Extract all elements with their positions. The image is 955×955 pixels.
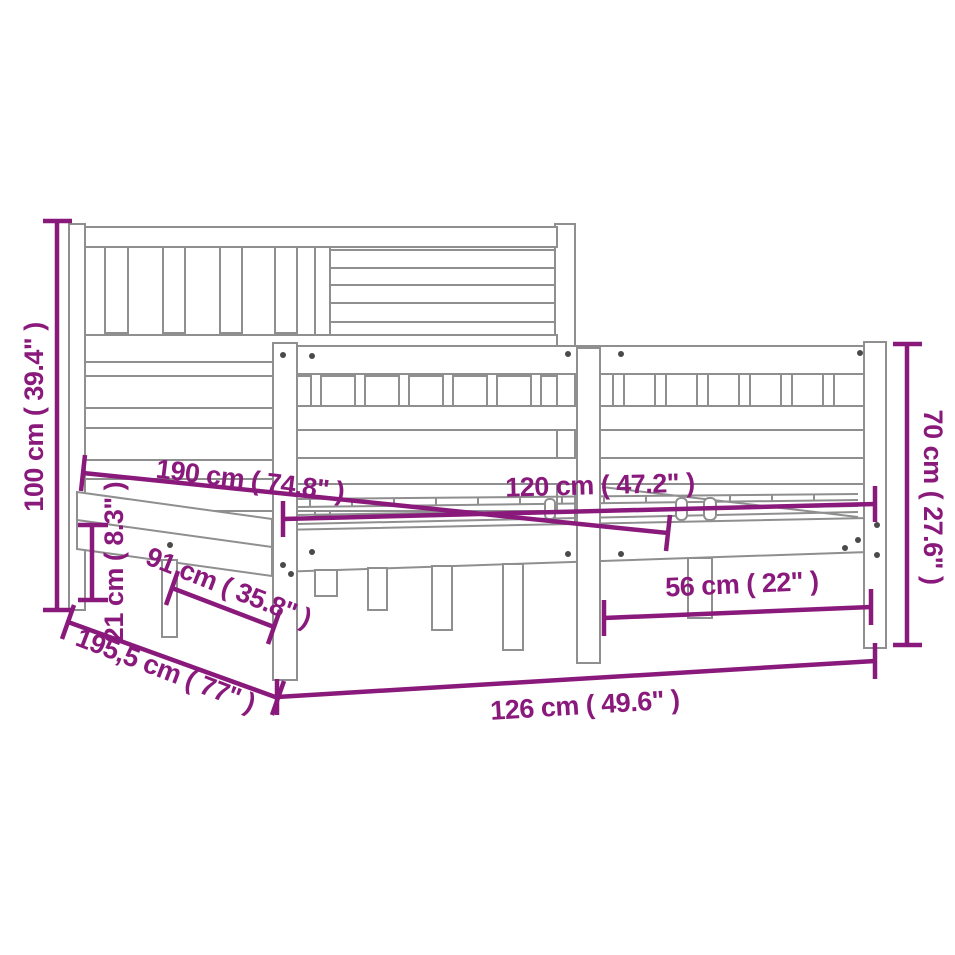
headboard-hslat [330,285,555,303]
front-rail-board [277,518,868,572]
headboard-hslat [330,250,555,268]
label-headboard-height: 100 cm ( 39.4" ) [19,322,49,511]
headboard-slat [105,247,128,333]
headboard-left-post [69,224,85,610]
label-rail-height: 21 cm ( 8.3" ) [99,482,129,642]
leg [315,570,337,596]
footboard-mid-post [577,348,600,663]
label-inner-width: 120 cm ( 47.2" ) [505,468,695,503]
headboard-slat [220,247,242,333]
leg [503,564,523,650]
headboard-slat [163,247,185,333]
label-leg-span: 56 cm ( 22" ) [665,566,820,603]
label-footboard-height: 70 cm ( 27.6" ) [918,410,948,585]
leg [432,566,452,630]
headboard-rail [85,428,557,460]
headboard-top-rail [85,227,557,247]
label-outer-width: 126 cm ( 49.6" ) [489,684,680,726]
headboard-slat [275,247,297,333]
dimension-footboard-height [893,344,922,645]
bed-frame-dimension-diagram: 100 cm ( 39.4" ) 190 cm ( 74.8" ) 21 cm … [0,0,955,955]
leg-top-cap [545,499,555,519]
diagram-canvas: 100 cm ( 39.4" ) 190 cm ( 74.8" ) 21 cm … [0,0,955,955]
leg [368,568,387,610]
